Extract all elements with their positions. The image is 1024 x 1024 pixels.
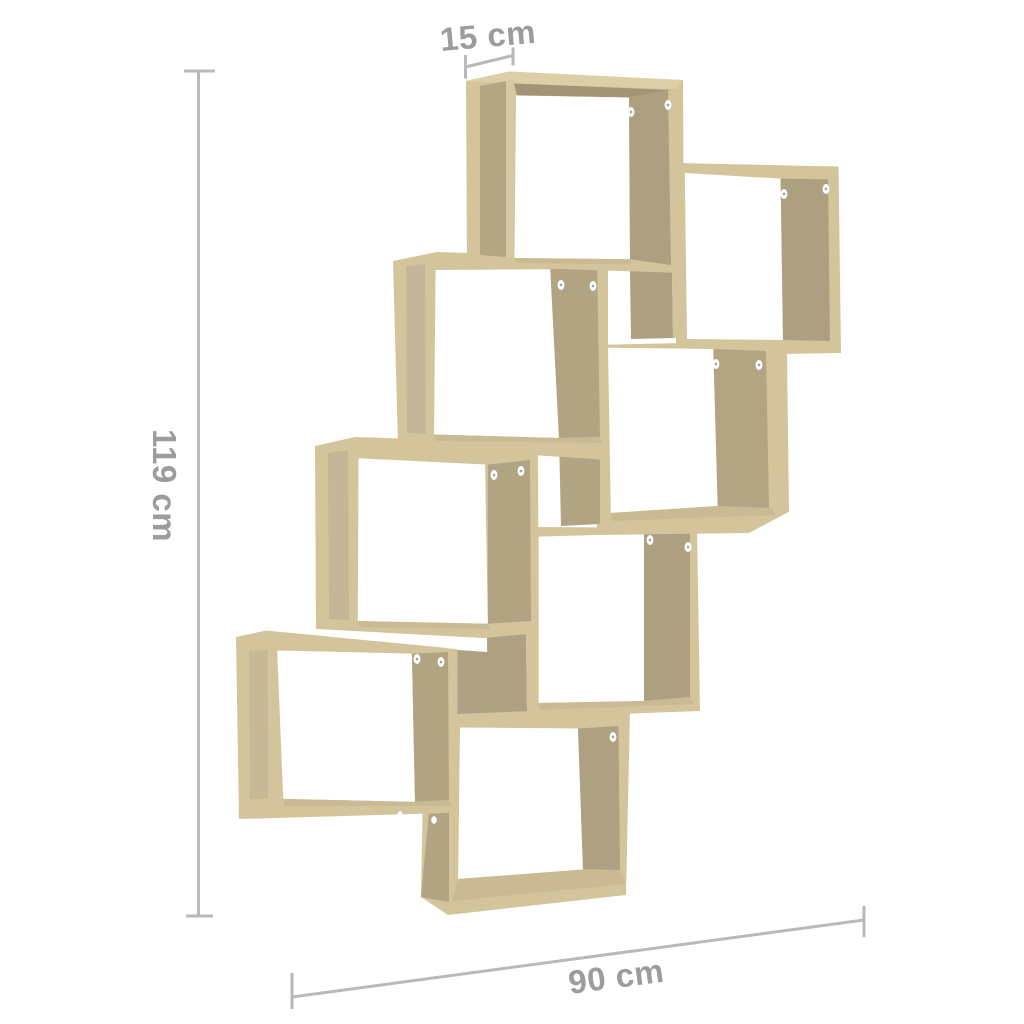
svg-text:119 cm: 119 cm [146, 429, 183, 542]
